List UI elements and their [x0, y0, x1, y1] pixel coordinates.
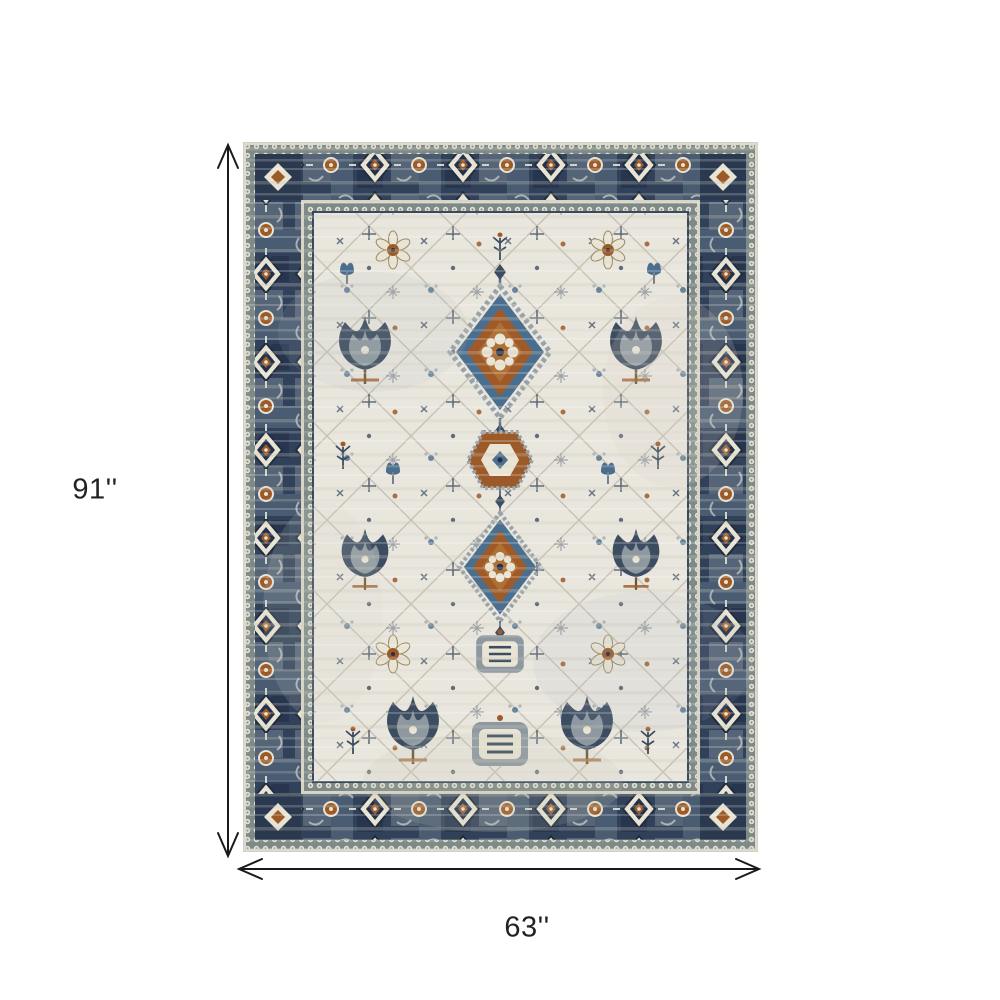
product-dimension-figure: 91'' 63''	[0, 0, 1000, 1000]
arrow-down-icon	[218, 833, 238, 856]
arrow-up-icon	[218, 145, 238, 168]
rug-distress-texture	[246, 145, 755, 849]
width-dimension-label: 63''	[504, 912, 549, 945]
arrow-right-icon	[736, 859, 759, 879]
width-dimension-arrow	[239, 859, 759, 879]
rug-photo	[243, 142, 758, 852]
arrow-left-icon	[239, 859, 262, 879]
height-dimension-arrow	[218, 145, 238, 856]
height-dimension-label: 91''	[72, 474, 117, 507]
